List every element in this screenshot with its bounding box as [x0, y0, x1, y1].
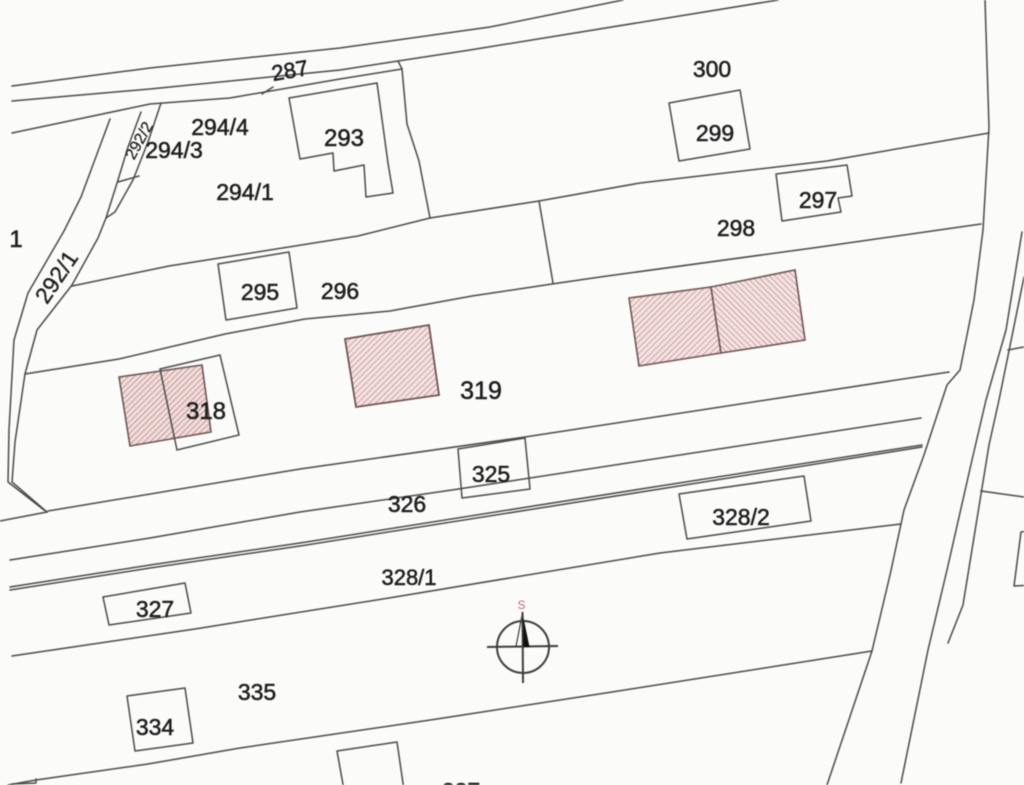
svg-text:296: 296	[321, 278, 359, 304]
svg-text:319: 319	[460, 377, 502, 405]
svg-text:294/3: 294/3	[145, 137, 203, 163]
svg-text:337: 337	[442, 778, 480, 785]
svg-text:298: 298	[717, 215, 755, 241]
svg-text:327: 327	[136, 596, 174, 622]
svg-text:318: 318	[186, 398, 226, 425]
svg-text:295: 295	[241, 279, 279, 305]
svg-text:325: 325	[472, 461, 510, 487]
svg-text:328/1: 328/1	[381, 565, 436, 590]
svg-text:1: 1	[9, 226, 22, 253]
svg-text:334: 334	[136, 714, 175, 740]
svg-text:300: 300	[693, 56, 731, 82]
svg-text:299: 299	[696, 120, 734, 146]
svg-text:294/1: 294/1	[216, 179, 274, 205]
svg-text:328/2: 328/2	[712, 504, 770, 530]
svg-text:293: 293	[324, 125, 364, 152]
svg-text:335: 335	[238, 679, 276, 705]
svg-text:297: 297	[799, 187, 837, 213]
svg-text:326: 326	[388, 491, 426, 517]
svg-text:S: S	[517, 598, 525, 612]
